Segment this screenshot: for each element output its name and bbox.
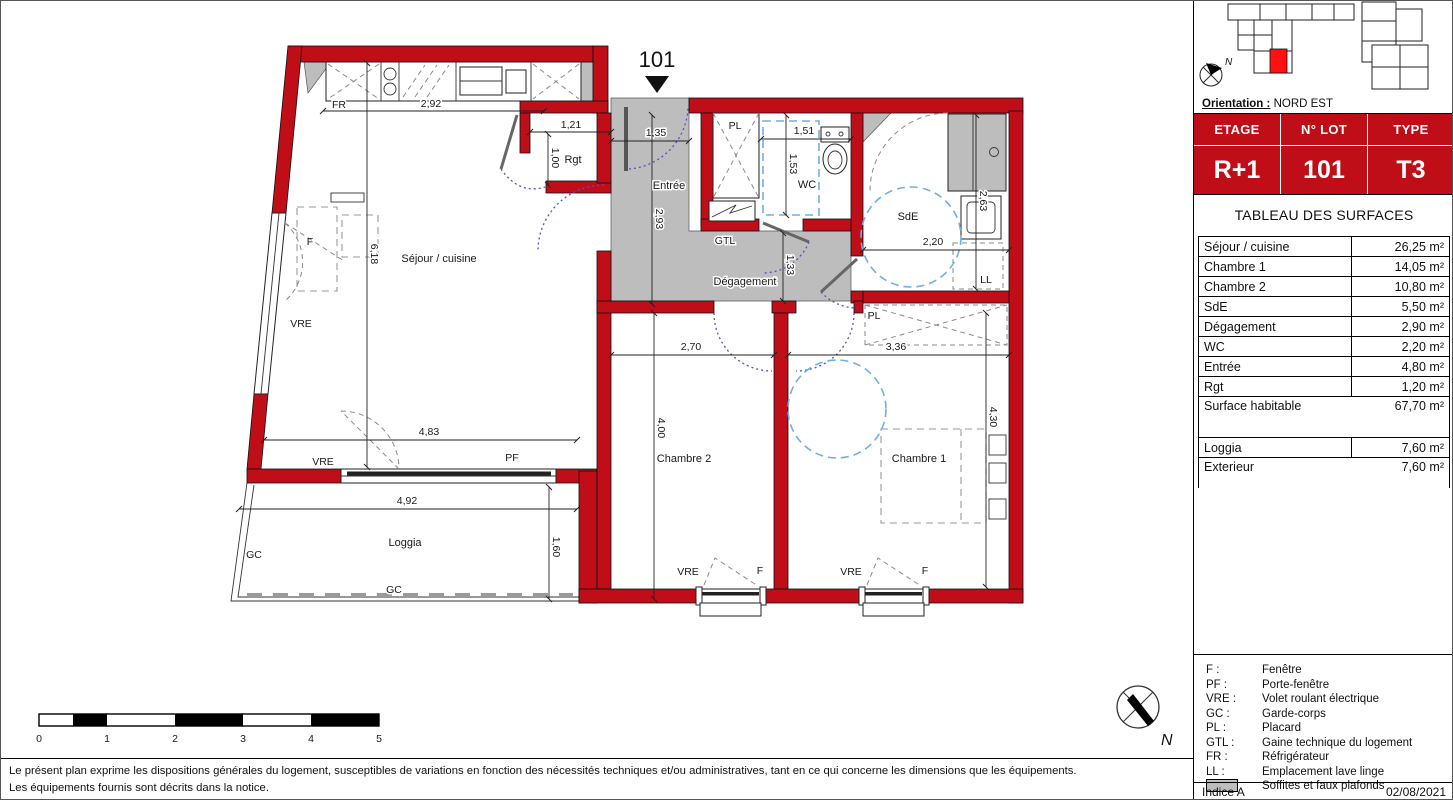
lot-header-etage: ETAGE [1194,114,1280,145]
window-tag-f: F [922,565,928,577]
surface-value: 7,60 m² [1352,458,1449,488]
shower-icon [948,114,1006,191]
table-row: Exterieur 7,60 m² [1199,458,1449,488]
surface-value: 2,20 m² [1351,337,1449,356]
shower-door-swing [870,113,948,191]
dim-label: 4,30 [987,407,999,428]
dim-label: 2,70 [681,341,702,353]
dim-label: 4,92 [397,495,418,507]
room-label-chambre1: Chambre 1 [892,453,946,465]
legend-label: Volet roulant électrique [1262,692,1379,707]
legend-item: PF : Porte-fenêtre [1206,678,1453,693]
sejour-door [538,185,604,251]
window-tag-pf: PF [505,452,518,464]
window-tag-vre: VRE [290,318,312,330]
dim-label: 4,00 [655,418,667,439]
scale-tick: 2 [172,733,178,745]
site-plan: N Orientation : NORD EST [1194,1,1453,113]
surface-label: Séjour / cuisine [1199,240,1351,254]
legend-label: Emplacement lave linge [1262,765,1384,780]
table-row: Rgt 1,20 m² [1199,377,1449,397]
surface-label: Exterieur [1199,458,1352,474]
lot-header-numlot: N° LOT [1280,114,1367,145]
lot-header-type: TYPE [1367,114,1453,145]
surfaces-title: TABLEAU DES SURFACES [1194,193,1453,236]
orientation-label: Orientation : [1202,98,1270,110]
scale-bar: 0 1 2 3 4 5 [36,714,382,745]
table-row: Chambre 1 14,05 m² [1199,257,1449,277]
chambre2-door [714,313,772,371]
mini-north-label: N [1225,57,1233,68]
surface-value: 4,80 m² [1351,357,1449,376]
legend-abbr: PL : [1206,721,1262,736]
info-panel: N Orientation : NORD EST ETAGE N° LOT TY… [1193,1,1453,800]
legend-abbr: GTL : [1206,736,1262,751]
table-row-total: Surface habitable 67,70 m² [1199,397,1449,438]
dim-label: 1,21 [561,119,582,131]
disclaimer-line1: Le présent plan exprime les dispositions… [9,763,1185,780]
legend-label: Placard [1262,721,1301,736]
surface-label: Entrée [1199,360,1351,374]
surface-value: 7,60 m² [1351,438,1449,457]
legend: F : Fenêtre PF : Porte-fenêtre VRE : Vol… [1194,654,1453,781]
legend-label: Gaine technique du logement [1262,736,1412,751]
dim-label: 1,00 [549,148,561,169]
legend-item: F : Fenêtre [1206,663,1453,678]
sink-icon [460,67,526,95]
legend-item: GTL : Gaine technique du logement [1206,736,1453,751]
legend-abbr: LL : [1206,765,1262,780]
room-label-loggia: Loggia [388,537,422,549]
lot-value-numlot: 101 [1280,146,1367,194]
revision-date: 02/08/2021 [1386,785,1446,799]
legend-abbr: PF : [1206,678,1262,693]
lot-value-type: T3 [1367,146,1453,194]
disclaimer-line2: Les équipements fournis sont décrits dan… [9,780,1185,797]
site-plan-map: N [1194,1,1453,113]
kitchen-counter [326,62,581,101]
chambre1-door [796,313,854,371]
disclaimer: Le présent plan exprime les dispositions… [1,758,1194,800]
legend-label: Réfrigérateur [1262,750,1329,765]
dim-label: 1,53 [787,154,799,175]
surface-total-label: Surface habitable [1199,397,1352,413]
dim-label: 4,83 [419,426,440,438]
room-label-sejour: Séjour / cuisine [401,253,476,265]
room-label-degagement: Dégagement [714,276,777,288]
window-tag-f: F [307,236,313,248]
room-label-sde: SdE [898,211,919,223]
room-label-rgt: Rgt [564,154,581,166]
revision-row: Indice A 02/08/2021 [1194,782,1453,800]
surface-value: 2,90 m² [1351,317,1449,336]
legend-item: GC : Garde-corps [1206,707,1453,722]
lot-table: ETAGE N° LOT TYPE R+1 101 T3 [1194,113,1453,195]
room-label-gtl: GTL [715,235,736,247]
table-row: Loggia 7,60 m² [1199,438,1449,458]
scale-tick: 4 [308,733,314,745]
legend-label: Garde-corps [1262,707,1326,722]
table-row: SdE 5,50 m² [1199,297,1449,317]
plan-sheet: 2,92 1,21 1,00 1,35 2,93 1,51 1,53 2,20 … [0,0,1453,800]
room-label-entree: Entrée [653,180,685,192]
window-chambre1 [859,558,929,616]
room-label-wc: WC [798,179,816,191]
surface-value: 1,20 m² [1351,377,1449,396]
north-label: N [1161,732,1173,749]
mini-compass-icon: N [1200,57,1233,86]
window-tag-f: F [757,565,763,577]
window-tag-vre: VRE [677,566,699,578]
dim-label: 2,20 [923,236,944,248]
scale-tick: 0 [36,733,42,745]
fridge-label: FR [332,99,346,111]
surface-value: 10,80 m² [1351,277,1449,296]
unit-marker-arrow-icon [645,76,669,93]
surface-label: Chambre 2 [1199,280,1351,294]
dim-label: 6,18 [368,244,380,265]
surface-label: Chambre 1 [1199,260,1351,274]
north-compass-icon: N [1117,686,1173,749]
toilet-icon [821,127,849,174]
table-row: Entrée 4,80 m² [1199,357,1449,377]
surface-value: 14,05 m² [1351,257,1449,276]
surface-label: Rgt [1199,380,1351,394]
surface-label: WC [1199,340,1351,354]
window-sejour-south [341,411,556,483]
dim-label: 2,93 [653,209,665,230]
surface-value: 26,25 m² [1351,237,1449,256]
closet-label: PL [868,310,881,322]
railing-tag-gc: GC [246,549,262,561]
legend-item: LL : Emplacement lave linge [1206,765,1453,780]
legend-item: PL : Placard [1206,721,1453,736]
surface-label: SdE [1199,300,1351,314]
legend-abbr: FR : [1206,750,1262,765]
window-tag-vre: VRE [312,456,334,468]
orientation: Orientation : NORD EST [1202,98,1333,110]
window-chambre2 [696,558,766,616]
bed-icon [881,429,1006,523]
legend-item: FR : Réfrigérateur [1206,750,1453,765]
scale-tick: 5 [376,733,382,745]
railing-tag-gc: GC [386,584,402,596]
lot-value-etage: R+1 [1194,146,1280,194]
floor-plan: 2,92 1,21 1,00 1,35 2,93 1,51 1,53 2,20 … [1,1,1194,758]
closet-label: PL [729,120,742,132]
dim-label: 3,36 [886,341,907,353]
scale-tick: 3 [240,733,246,745]
dim-label: 1,33 [784,255,796,276]
legend-abbr: VRE : [1206,692,1262,707]
dim-label: 2,92 [421,98,442,110]
dim-label: 1,60 [550,537,562,558]
table-row: Séjour / cuisine 26,25 m² [1199,237,1449,257]
unit-marker: 101 [639,47,676,93]
gtl-box [709,201,755,221]
revision-indice: Indice A [1202,785,1245,799]
legend-abbr: GC : [1206,707,1262,722]
table-row: Dégagement 2,90 m² [1199,317,1449,337]
room-label-chambre2: Chambre 2 [657,453,711,465]
dim-label: 2,63 [977,191,989,212]
table-row: WC 2,20 m² [1199,337,1449,357]
surface-label: Loggia [1199,441,1351,455]
legend-item: VRE : Volet roulant électrique [1206,692,1453,707]
window-sejour-left [254,213,344,394]
unit-marker-number: 101 [639,47,676,72]
scale-tick: 1 [104,733,110,745]
legend-label: Porte-fenêtre [1262,678,1329,693]
laundry-label: LL [980,274,992,286]
window-tag-vre: VRE [840,566,862,578]
surface-label: Dégagement [1199,320,1351,334]
surface-value: 5,50 m² [1351,297,1449,316]
legend-label: Fenêtre [1262,663,1302,678]
surface-total-value: 67,70 m² [1352,397,1449,437]
table-row: Chambre 2 10,80 m² [1199,277,1449,297]
dim-label: 1,35 [646,127,667,139]
legend-abbr: F : [1206,663,1262,678]
surfaces-table: Séjour / cuisine 26,25 m² Chambre 1 14,0… [1198,236,1450,488]
dim-label: 1,51 [794,125,815,137]
highlighted-unit [1270,49,1287,73]
orientation-value: NORD EST [1274,98,1333,110]
